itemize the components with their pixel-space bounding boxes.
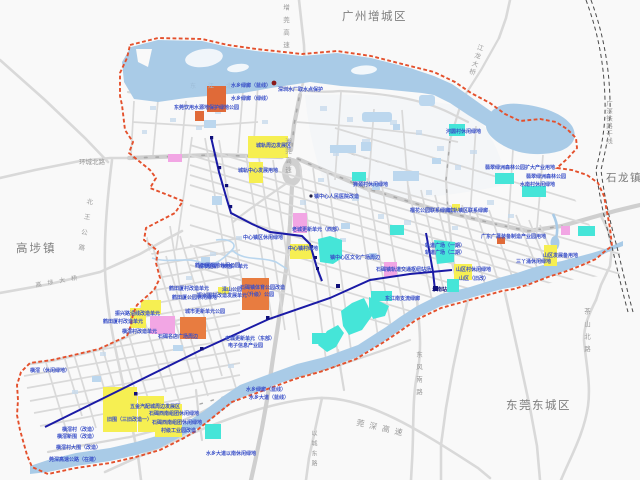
svg-text:老城更新单元（西部）: 老城更新单元（西部） [291, 226, 342, 233]
svg-text:横滘村（改造）: 横滘村（改造） [61, 426, 97, 433]
svg-text:鹤田厦公园休闲绿地: 鹤田厦公园休闲绿地 [172, 294, 217, 301]
svg-text:轨道广场（二期）: 轨道广场（二期） [425, 249, 465, 256]
svg-text:振兴路沿线改造单元: 振兴路沿线改造单元 [115, 310, 160, 317]
svg-text:轨道广场（一期）: 轨道广场（一期） [425, 242, 465, 249]
svg-text:山区村休闲绿地: 山区村休闲绿地 [456, 266, 491, 273]
svg-text:泽山公园: 泽山公园 [222, 286, 242, 293]
svg-text:中心镇区休闲绿地: 中心镇区休闲绿地 [243, 234, 283, 241]
svg-text:旧围（三旧改造一）: 旧围（三旧改造一） [107, 416, 152, 423]
svg-text:五金汽配城周边发展区: 五金汽配城周边发展区 [130, 403, 180, 410]
svg-text:鹤田厦湿地休闲公园: 鹤田厦湿地休闲公园 [195, 262, 240, 269]
svg-text:东莞东城区: 东莞东城区 [506, 399, 571, 412]
svg-text:石碣镇轨道交通枢纽站场: 石碣镇轨道交通枢纽站场 [375, 266, 431, 273]
svg-text:广州增城区: 广州增城区 [342, 9, 407, 23]
svg-text:广东广晟装备制造产业园用地: 广东广晟装备制造产业园用地 [481, 233, 546, 240]
svg-text:环城北路: 环城北路 [79, 157, 106, 166]
svg-text:东江南支流绿廊: 东江南支流绿廊 [385, 295, 420, 302]
svg-text:鹤田厦村改造单元: 鹤田厦村改造单元 [103, 318, 143, 325]
svg-text:城轨中心发展用地: 城轨中心发展用地 [238, 167, 278, 174]
svg-text:村级工业园改造: 村级工业园改造 [160, 427, 197, 434]
svg-text:高埗镇: 高埗镇 [16, 241, 57, 255]
svg-text:水乡绿廊（绿线）: 水乡绿廊（绿线） [230, 95, 271, 102]
svg-text:山区（旧改）: 山区（旧改） [459, 275, 489, 282]
svg-text:翡翠绿洲森林公园: 翡翠绿洲森林公园 [526, 173, 566, 180]
svg-text:鹤田厦村改造单元: 鹤田厦村改造单元 [169, 285, 209, 292]
svg-text:石龙镇: 石龙镇 [606, 171, 640, 184]
svg-text:河圆村休闲绿地: 河圆村休闲绿地 [445, 128, 481, 135]
svg-text:城轨周边发展区: 城轨周边发展区 [256, 142, 291, 149]
svg-text:莞深高速公路（在建）: 莞深高速公路（在建） [49, 456, 99, 463]
svg-text:电子信息产业园: 电子信息产业园 [228, 342, 263, 349]
svg-text:石碣西南组团休闲绿地: 石碣西南组团休闲绿地 [151, 419, 202, 426]
svg-text:山区发展备用地: 山区发展备用地 [543, 252, 578, 259]
svg-text:水乡绿廊（蓝线）: 水乡绿廊（蓝线） [230, 82, 271, 89]
svg-text:水南村休闲绿地: 水南村休闲绿地 [519, 181, 555, 188]
svg-text:横滘（休闲绿地）: 横滘（休闲绿地） [29, 367, 70, 374]
svg-text:水乡大道以南休闲绿地: 水乡大道以南休闲绿地 [205, 450, 256, 457]
svg-text:水南站: 水南站 [431, 286, 447, 293]
svg-text:东莞饮用水源地保护绿地公园: 东莞饮用水源地保护绿地公园 [174, 104, 239, 111]
svg-text:水乡绿廊（蓝线）: 水乡绿廊（蓝线） [245, 386, 286, 393]
svg-text:石碣名店广场周边: 石碣名店广场周边 [157, 333, 199, 340]
svg-text:以城东路: 以城东路 [310, 430, 317, 470]
svg-text:水乡大道（蓝线）: 水乡大道（蓝线） [248, 394, 289, 401]
svg-text:城轨镇区联系绿廊: 城轨镇区联系绿廊 [448, 207, 488, 214]
svg-text:石碣西南组团休闲绿地: 石碣西南组团休闲绿地 [148, 410, 199, 417]
svg-text:（升级）公园: （升级）公园 [244, 291, 274, 298]
svg-text:榴花公园联系绿廊: 榴花公园联系绿廊 [410, 207, 450, 214]
svg-text:横滘新围（改造）: 横滘新围（改造） [56, 433, 97, 440]
svg-text:狮颈村休闲绿地: 狮颈村休闲绿地 [352, 181, 388, 188]
svg-text:镇中心区文化广场周边: 镇中心区文化广场周边 [330, 254, 381, 261]
svg-text:石碣镇体育公园改造: 石碣镇体育公园改造 [239, 284, 286, 291]
svg-text:镇中心人民医院改造: 镇中心人民医院改造 [314, 193, 360, 200]
svg-text:老城更新单元（东部）: 老城更新单元（东部） [224, 335, 275, 342]
svg-text:三丫涌休闲绿地: 三丫涌休闲绿地 [516, 258, 551, 265]
svg-text:翡翠绿洲森林公园扩大产业用地: 翡翠绿洲森林公园扩大产业用地 [485, 164, 555, 171]
svg-text:中心镇村绿地: 中心镇村绿地 [288, 245, 318, 252]
svg-text:深圳水厂取水点保护: 深圳水厂取水点保护 [278, 86, 323, 93]
svg-text:城市更新单元公园: 城市更新单元公园 [185, 308, 225, 315]
svg-text:横滘村改造单元: 横滘村改造单元 [121, 328, 157, 335]
svg-text:横滘村大围（改造）: 横滘村大围（改造） [55, 444, 101, 451]
